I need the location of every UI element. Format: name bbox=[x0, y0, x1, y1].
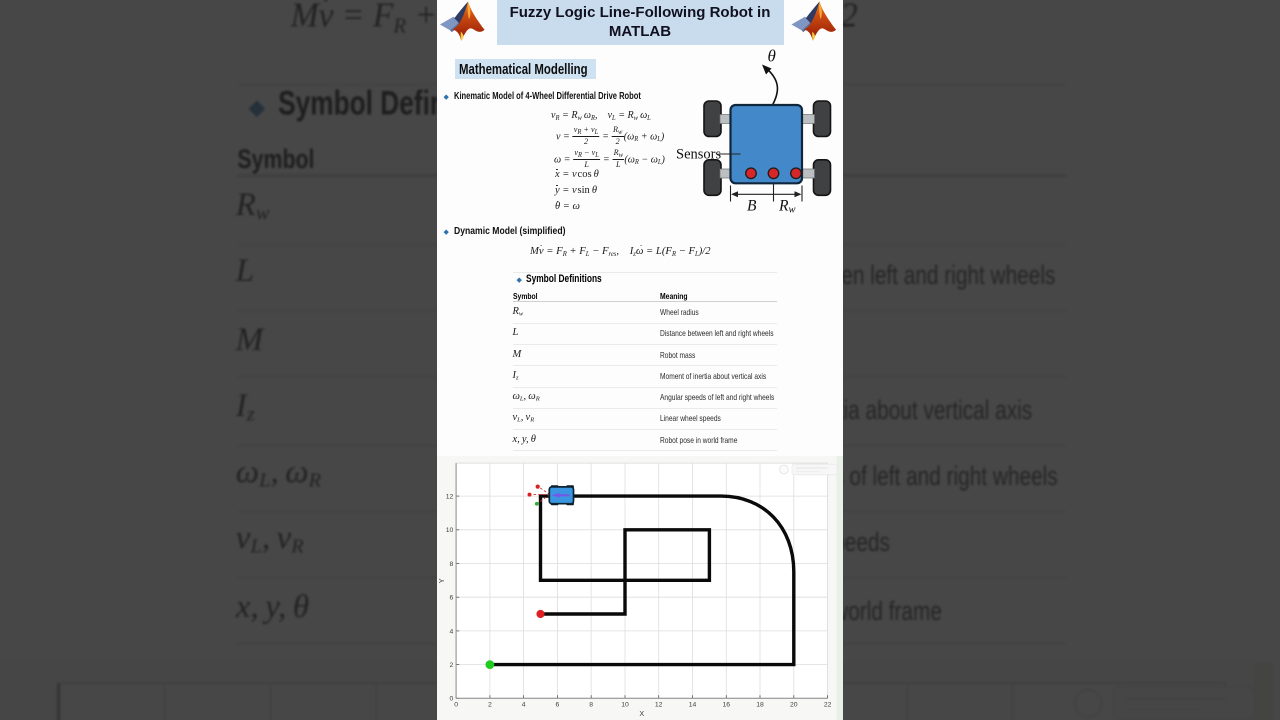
svg-text:2: 2 bbox=[488, 702, 492, 709]
svg-text:8: 8 bbox=[450, 561, 454, 568]
svg-text:4: 4 bbox=[522, 702, 526, 709]
svg-text:6: 6 bbox=[556, 702, 560, 709]
svg-text:20: 20 bbox=[790, 702, 798, 709]
svg-text:6: 6 bbox=[450, 595, 454, 602]
svg-text:0: 0 bbox=[450, 696, 454, 703]
svg-text:X: X bbox=[639, 709, 644, 718]
svg-text:4: 4 bbox=[450, 628, 454, 635]
svg-text:Y: Y bbox=[437, 578, 446, 583]
svg-text:18: 18 bbox=[756, 702, 764, 709]
svg-text:16: 16 bbox=[723, 702, 731, 709]
svg-text:8: 8 bbox=[589, 702, 593, 709]
svg-text:B: B bbox=[747, 198, 757, 215]
svg-text:10: 10 bbox=[446, 527, 454, 534]
svg-text:22: 22 bbox=[824, 702, 832, 709]
svg-text:0: 0 bbox=[454, 702, 458, 709]
svg-text:Sensors: Sensors bbox=[676, 147, 721, 163]
svg-text:10: 10 bbox=[621, 702, 629, 709]
svg-text:Rw: Rw bbox=[778, 198, 795, 216]
svg-text:12: 12 bbox=[446, 494, 454, 501]
svg-text:12: 12 bbox=[655, 702, 663, 709]
svg-text:2: 2 bbox=[450, 662, 454, 669]
svg-text:14: 14 bbox=[689, 702, 697, 709]
svg-text:θ: θ bbox=[768, 47, 776, 66]
